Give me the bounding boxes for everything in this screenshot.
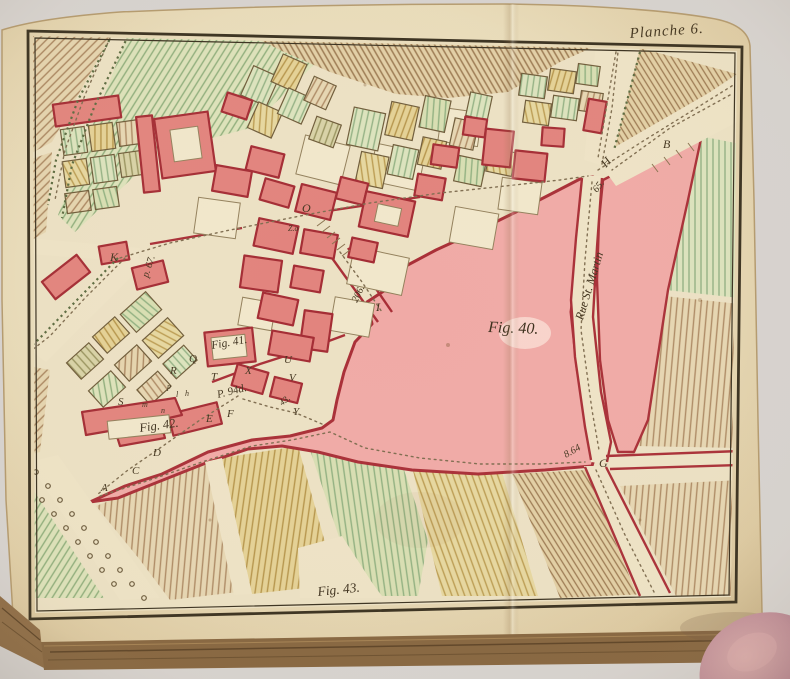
antique-map-plate: Fig. 40. Fig. 41. Fig. 42. Fig. 43. Rue … [0,0,790,679]
photo-of-antique-map-book: Fig. 40. Fig. 41. Fig. 42. Fig. 43. Rue … [0,0,790,679]
photo-vignette [0,0,790,679]
